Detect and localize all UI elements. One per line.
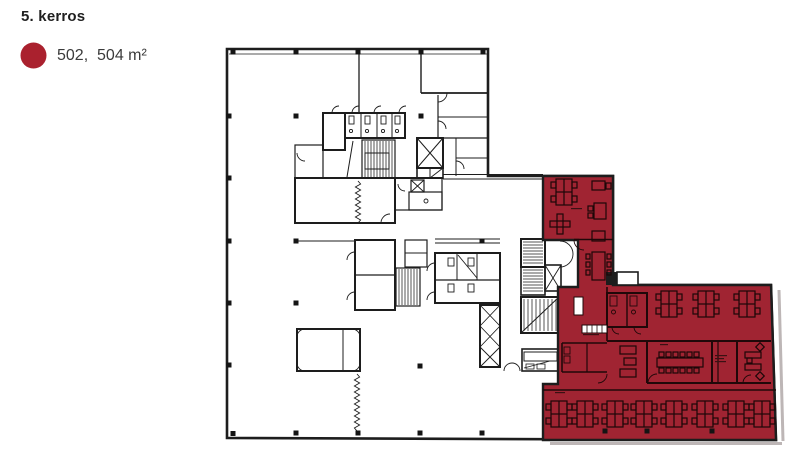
floor-plan-svg	[0, 0, 798, 466]
floor-plan-page: 5. kerros 502, 504 m²	[0, 0, 798, 466]
